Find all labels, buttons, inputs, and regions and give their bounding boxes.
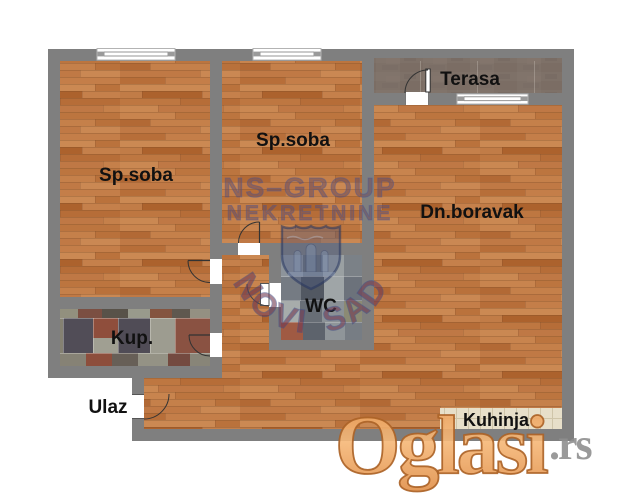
svg-text:Oglasi: Oglasi — [335, 399, 548, 492]
svg-text:Dn.boravak: Dn.boravak — [420, 202, 524, 223]
svg-text:.rs: .rs — [549, 420, 593, 469]
svg-text:NS–GROUP: NS–GROUP — [223, 172, 396, 203]
svg-text:NEKRETNINE: NEKRETNINE — [227, 202, 394, 225]
svg-text:Terasa: Terasa — [440, 69, 500, 90]
svg-text:Kup.: Kup. — [111, 328, 153, 349]
svg-text:Sp.soba: Sp.soba — [256, 130, 330, 151]
svg-text:Ulaz: Ulaz — [88, 397, 127, 418]
svg-text:Sp.soba: Sp.soba — [99, 165, 173, 186]
